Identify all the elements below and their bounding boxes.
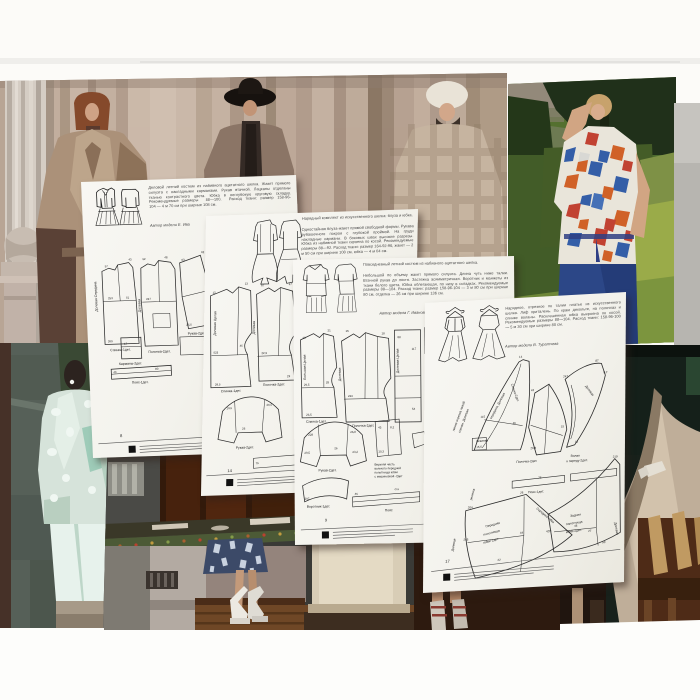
svg-text:полотнища: полотнища bbox=[483, 528, 500, 536]
svg-text:26,5: 26,5 bbox=[267, 403, 273, 407]
svg-text:29: 29 bbox=[287, 374, 291, 378]
svg-text:9: 9 bbox=[325, 517, 328, 522]
svg-text:10,3: 10,3 bbox=[378, 449, 384, 453]
svg-text:Долевая: Долевая bbox=[584, 384, 595, 397]
svg-text:75: 75 bbox=[256, 461, 260, 465]
svg-text:26,8: 26,8 bbox=[350, 430, 356, 434]
svg-text:стя: стя bbox=[395, 487, 400, 491]
svg-text:227: 227 bbox=[146, 297, 151, 301]
svg-text:Долевая Целая: Долевая Целая bbox=[213, 311, 217, 336]
svg-text:51: 51 bbox=[126, 296, 130, 300]
svg-text:Долевая Середина: Долевая Середина bbox=[93, 281, 98, 311]
svg-text:15: 15 bbox=[561, 424, 565, 428]
svg-text:Пояс: Пояс bbox=[385, 508, 393, 512]
svg-text:115: 115 bbox=[480, 415, 485, 419]
svg-text:23,2: 23,2 bbox=[352, 450, 358, 454]
svg-text:265: 265 bbox=[464, 538, 469, 542]
svg-text:80: 80 bbox=[155, 367, 159, 371]
svg-text:14: 14 bbox=[519, 355, 523, 359]
svg-text:18: 18 bbox=[382, 331, 386, 335]
svg-text:27: 27 bbox=[588, 529, 592, 533]
svg-text:Полочка-2дет.: Полочка-2дет. bbox=[263, 382, 285, 387]
svg-text:57: 57 bbox=[105, 264, 109, 268]
svg-text:к переду-2дет.: к переду-2дет. bbox=[567, 458, 588, 463]
svg-text:Пояс-1дет.: Пояс-1дет. bbox=[132, 380, 149, 385]
svg-text:42П: 42П bbox=[546, 529, 551, 533]
svg-text:Рукав-2дет.: Рукав-2дет. bbox=[236, 445, 254, 450]
svg-text:46: 46 bbox=[355, 492, 359, 496]
svg-text:21: 21 bbox=[327, 328, 331, 332]
svg-text:Карманы-2дет.: Карманы-2дет. bbox=[119, 361, 142, 366]
svg-text:Спинка-1дет.: Спинка-1дет. bbox=[221, 389, 242, 394]
svg-text:13: 13 bbox=[575, 440, 579, 444]
svg-text:75: 75 bbox=[538, 476, 542, 480]
svg-text:8: 8 bbox=[120, 433, 123, 438]
svg-text:40: 40 bbox=[113, 370, 117, 374]
svg-text:Пояс-1дет.: Пояс-1дет. bbox=[528, 489, 544, 494]
svg-text:12: 12 bbox=[213, 291, 217, 295]
svg-text:25,5: 25,5 bbox=[186, 323, 192, 327]
svg-text:Спинка-1дет.: Спинка-1дет. bbox=[306, 419, 326, 423]
svg-text:Воротник-1дет.: Воротник-1дет. bbox=[307, 504, 331, 508]
svg-text:52: 52 bbox=[142, 257, 146, 261]
svg-text:219: 219 bbox=[613, 454, 618, 458]
svg-text:Долевая: Долевая bbox=[137, 299, 142, 313]
svg-text:228: 228 bbox=[308, 433, 313, 437]
svg-text:Полочка-2дет.: Полочка-2дет. bbox=[148, 349, 170, 354]
svg-text:Волан: Волан bbox=[571, 454, 581, 459]
svg-text:26: 26 bbox=[334, 446, 338, 450]
svg-text:87: 87 bbox=[595, 359, 599, 363]
svg-text:29,5: 29,5 bbox=[304, 383, 310, 387]
svg-text:28: 28 bbox=[303, 336, 307, 340]
svg-text:223: 223 bbox=[348, 394, 353, 398]
svg-text:28: 28 bbox=[326, 380, 330, 384]
svg-text:26: 26 bbox=[242, 427, 246, 431]
svg-text:26,8: 26,8 bbox=[530, 446, 536, 450]
svg-text:26,5: 26,5 bbox=[306, 413, 312, 417]
svg-text:523: 523 bbox=[214, 351, 219, 355]
svg-text:Большая Целая: Большая Целая bbox=[303, 354, 307, 379]
svg-text:43: 43 bbox=[128, 257, 132, 261]
svg-text:Долевая: Долевая bbox=[613, 522, 619, 536]
svg-text:88: 88 bbox=[398, 335, 402, 339]
svg-text:62: 62 bbox=[201, 250, 205, 254]
svg-text:Полочка-2дет.: Полочка-2дет. bbox=[516, 459, 537, 464]
svg-text:8,2: 8,2 bbox=[390, 425, 394, 429]
svg-text:204: 204 bbox=[468, 505, 473, 509]
svg-text:Долевая: Долевая bbox=[252, 321, 256, 335]
svg-text:резинка: резинка bbox=[469, 488, 476, 501]
svg-text:Долевая: Долевая bbox=[450, 538, 456, 551]
svg-text:45: 45 bbox=[240, 344, 244, 348]
svg-text:15,5: 15,5 bbox=[476, 445, 482, 449]
svg-text:Полочка-2дет.: Полочка-2дет. bbox=[352, 424, 374, 428]
svg-text:117: 117 bbox=[412, 347, 417, 351]
svg-text:22,9: 22,9 bbox=[261, 351, 267, 355]
svg-text:Долевая: Долевая bbox=[338, 367, 342, 381]
svg-text:50: 50 bbox=[602, 540, 606, 544]
svg-text:Середина юбки: Середина юбки bbox=[535, 507, 555, 525]
svg-text:15: 15 bbox=[345, 329, 349, 333]
svg-text:297: 297 bbox=[305, 497, 310, 501]
svg-text:юбки-2дет.: юбки-2дет. bbox=[566, 528, 582, 534]
svg-text:45: 45 bbox=[378, 425, 382, 429]
svg-text:Передняя: Передняя bbox=[485, 521, 500, 529]
svg-text:14: 14 bbox=[227, 468, 232, 473]
svg-text:29,5: 29,5 bbox=[304, 451, 310, 455]
svg-text:22: 22 bbox=[498, 558, 502, 562]
svg-text:Задняя: Задняя bbox=[570, 512, 581, 518]
svg-text:269: 269 bbox=[108, 339, 113, 343]
svg-text:Рукав-2дет.: Рукав-2дет. bbox=[318, 468, 336, 472]
svg-text:26: 26 bbox=[520, 491, 524, 495]
svg-text:Спинка-1дет.: Спинка-1дет. bbox=[110, 348, 131, 353]
svg-text:46: 46 bbox=[513, 421, 517, 425]
svg-text:47: 47 bbox=[289, 282, 293, 286]
svg-text:63: 63 bbox=[181, 258, 185, 262]
svg-text:12: 12 bbox=[261, 283, 265, 287]
svg-text:с машиновкой -2дет: с машиновкой -2дет bbox=[375, 474, 404, 479]
svg-text:17: 17 bbox=[445, 559, 450, 564]
svg-text:19,5: 19,5 bbox=[227, 406, 233, 410]
svg-text:253: 253 bbox=[108, 296, 113, 300]
svg-text:46: 46 bbox=[574, 524, 578, 528]
svg-text:44: 44 bbox=[520, 531, 524, 535]
svg-text:9,2: 9,2 bbox=[603, 370, 607, 374]
svg-text:13: 13 bbox=[245, 282, 249, 286]
svg-text:43: 43 bbox=[531, 388, 535, 392]
svg-text:29,5: 29,5 bbox=[215, 382, 221, 386]
svg-text:Долевая Целая: Долевая Целая bbox=[396, 349, 400, 374]
svg-text:17: 17 bbox=[124, 342, 128, 346]
svg-text:юбки-2дет.: юбки-2дет. bbox=[483, 537, 499, 545]
svg-text:54: 54 bbox=[412, 407, 416, 411]
svg-text:48: 48 bbox=[164, 255, 168, 259]
svg-text:247: 247 bbox=[563, 374, 568, 378]
svg-text:середина. Долевая: середина. Долевая bbox=[489, 392, 506, 420]
svg-text:резинка: резинка bbox=[476, 439, 488, 444]
